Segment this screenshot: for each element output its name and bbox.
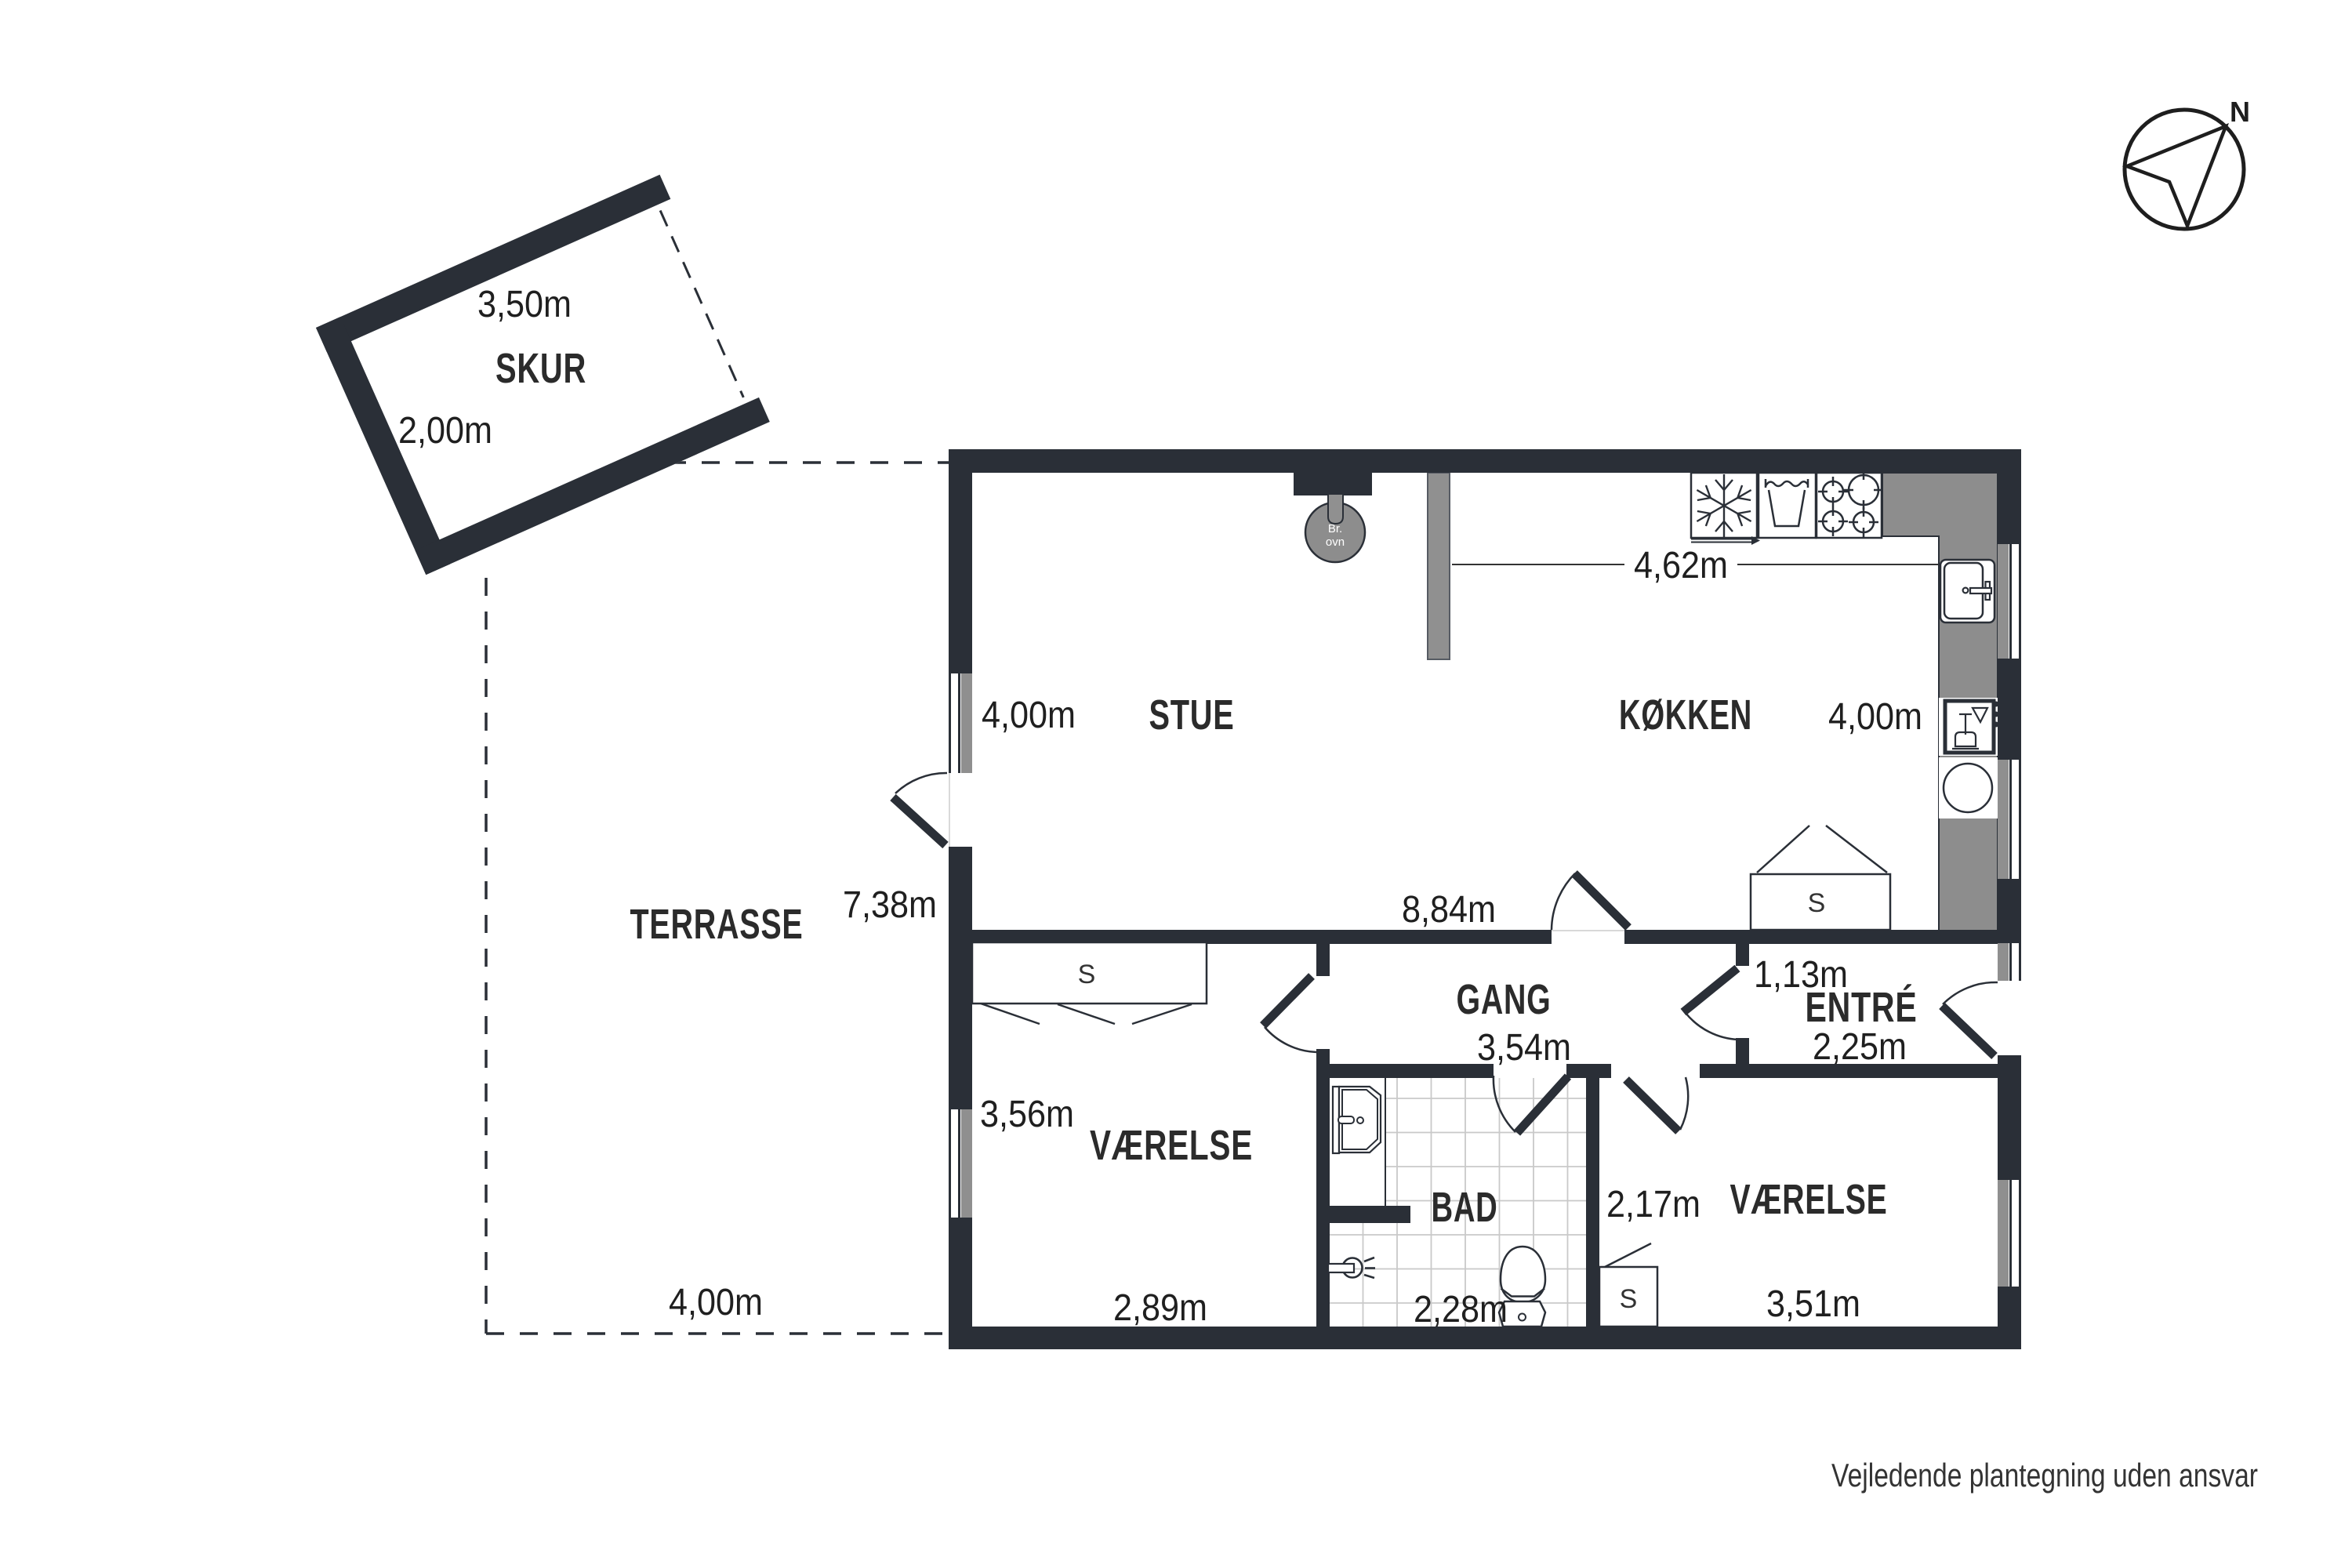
svg-text:2,28m: 2,28m xyxy=(1414,1289,1508,1330)
svg-text:S: S xyxy=(1808,888,1826,918)
svg-text:4,00m: 4,00m xyxy=(669,1282,763,1323)
svg-text:Br.: Br. xyxy=(1328,522,1342,535)
svg-text:STUE: STUE xyxy=(1149,691,1235,739)
svg-text:8,84m: 8,84m xyxy=(1402,889,1496,931)
svg-text:N: N xyxy=(2230,96,2250,128)
svg-text:2,89m: 2,89m xyxy=(1113,1287,1207,1329)
svg-text:3,54m: 3,54m xyxy=(1477,1027,1571,1069)
svg-text:S: S xyxy=(1620,1284,1638,1314)
svg-text:2,17m: 2,17m xyxy=(1606,1184,1700,1225)
svg-text:4,00m: 4,00m xyxy=(982,695,1076,736)
svg-text:BAD: BAD xyxy=(1432,1184,1498,1231)
svg-text:3,56m: 3,56m xyxy=(980,1094,1074,1135)
svg-text:GANG: GANG xyxy=(1457,976,1552,1023)
svg-text:ENTRÉ: ENTRÉ xyxy=(1806,984,1918,1031)
svg-text:S: S xyxy=(1078,960,1096,989)
svg-text:Vejledende plantegning uden an: Vejledende plantegning uden ansvar xyxy=(1831,1457,2258,1494)
svg-text:4,62m: 4,62m xyxy=(1634,545,1728,586)
svg-text:SKUR: SKUR xyxy=(495,345,586,392)
svg-text:4,00m: 4,00m xyxy=(1828,696,1922,738)
svg-text:ovn: ovn xyxy=(1326,535,1345,549)
svg-text:2,00m: 2,00m xyxy=(398,410,492,452)
svg-text:3,50m: 3,50m xyxy=(477,284,572,325)
svg-text:VÆRELSE: VÆRELSE xyxy=(1090,1122,1253,1169)
svg-text:VÆRELSE: VÆRELSE xyxy=(1730,1176,1888,1223)
svg-text:7,38m: 7,38m xyxy=(843,884,937,926)
svg-text:KØKKEN: KØKKEN xyxy=(1619,691,1752,739)
svg-text:TERRASSE: TERRASSE xyxy=(630,901,804,948)
svg-text:2,25m: 2,25m xyxy=(1813,1026,1907,1068)
svg-text:3,51m: 3,51m xyxy=(1766,1283,1860,1325)
